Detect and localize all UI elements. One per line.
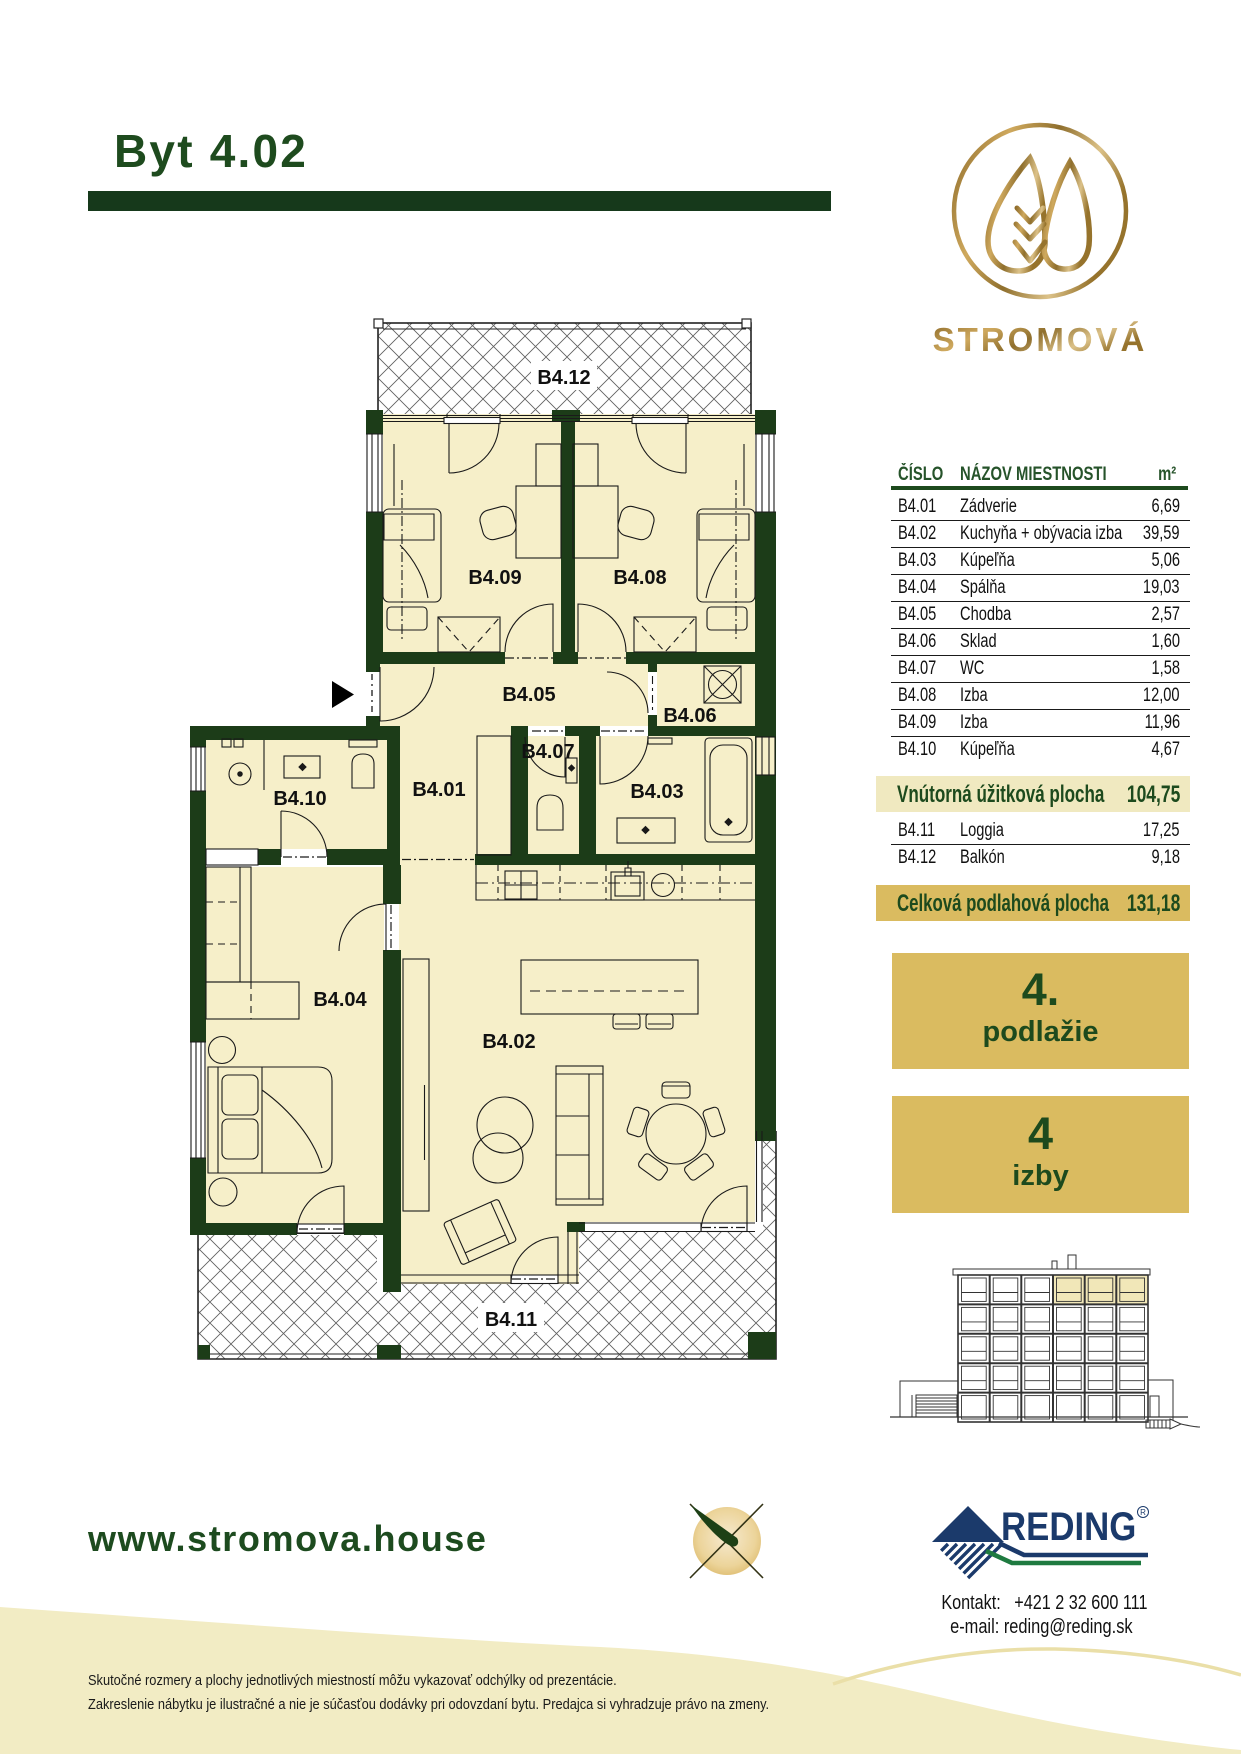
svg-text:STROMOVÁ: STROMOVÁ [933, 321, 1148, 358]
svg-text:B4.10: B4.10 [273, 788, 326, 810]
svg-text:R: R [1140, 1508, 1146, 1517]
svg-text:B4.11: B4.11 [485, 1309, 537, 1331]
svg-text:B4.04: B4.04 [313, 989, 367, 1011]
svg-text:B4.12: B4.12 [537, 367, 590, 389]
svg-text:B4.03: B4.03 [630, 781, 683, 803]
svg-text:REDING: REDING [1001, 1504, 1136, 1549]
svg-text:B4.06: B4.06 [663, 705, 716, 727]
svg-text:B4.07: B4.07 [521, 741, 574, 763]
svg-text:B4.05: B4.05 [502, 684, 555, 706]
svg-text:B4.02: B4.02 [482, 1031, 535, 1053]
svg-text:B4.08: B4.08 [613, 567, 666, 589]
svg-text:B4.09: B4.09 [468, 567, 521, 589]
svg-text:B4.01: B4.01 [412, 779, 465, 801]
